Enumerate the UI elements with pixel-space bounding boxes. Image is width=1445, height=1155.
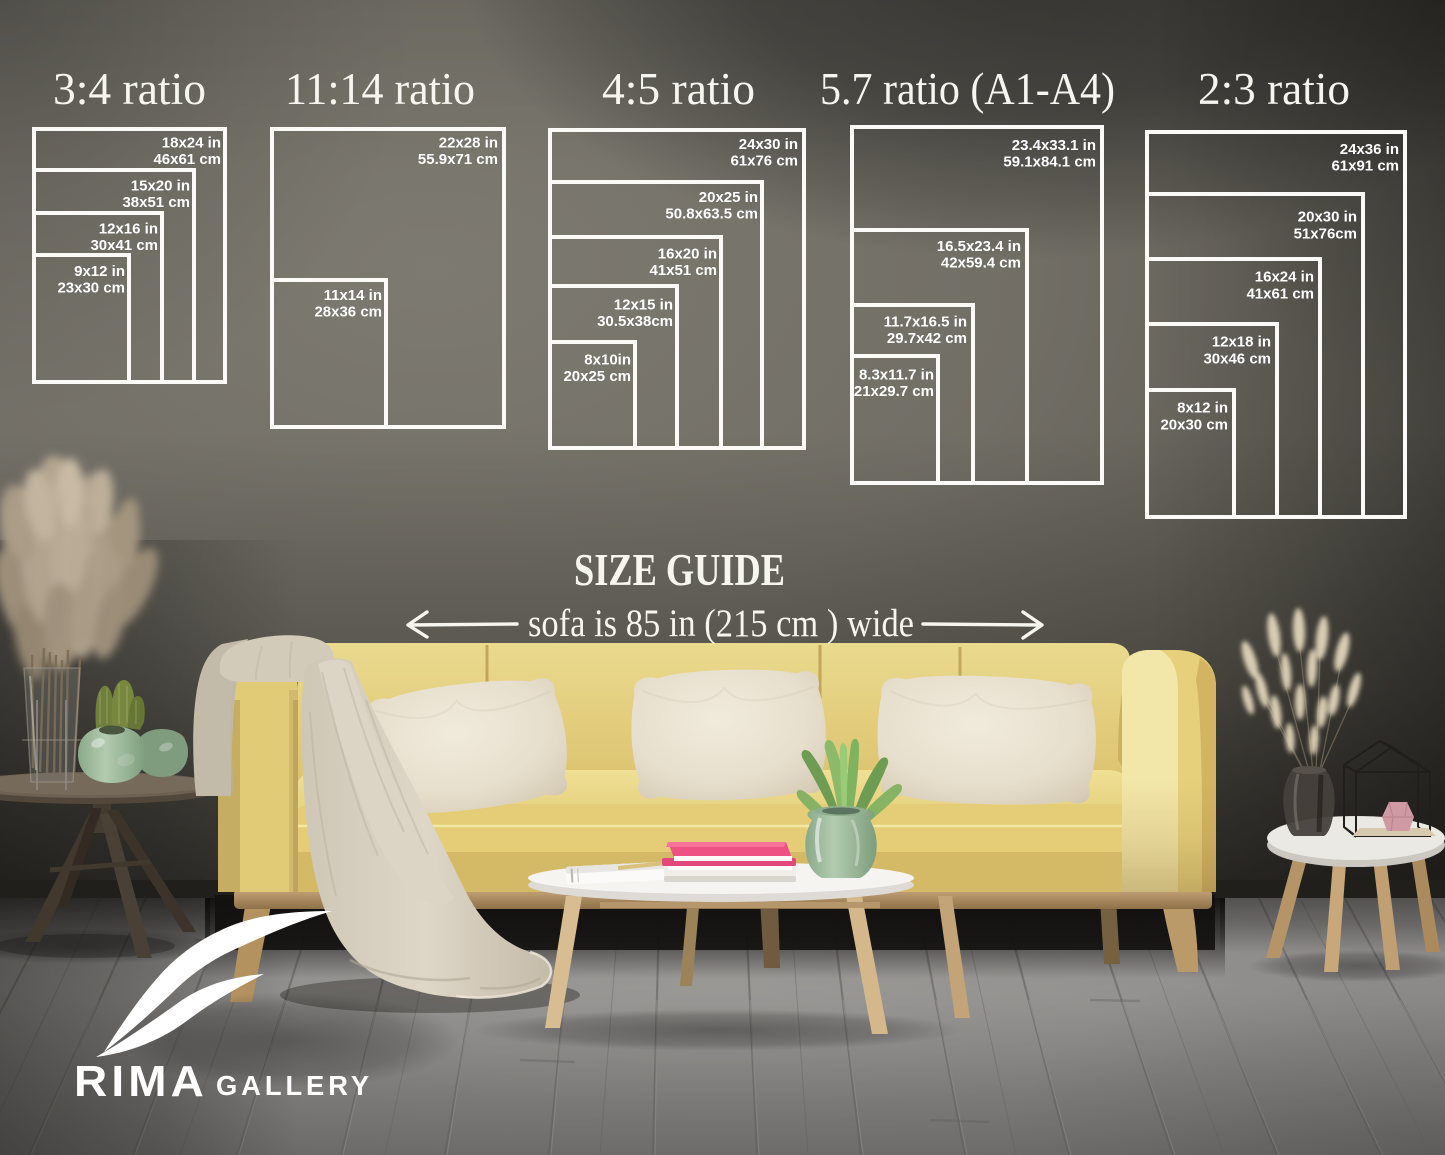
svg-text:16x20 in: 16x20 in (658, 246, 717, 263)
svg-text:55.9x71 cm: 55.9x71 cm (418, 151, 498, 168)
svg-text:16x24 in: 16x24 in (1255, 269, 1314, 286)
svg-text:24x30 in: 24x30 in (739, 136, 798, 153)
svg-text:9x12 in: 9x12 in (74, 263, 125, 280)
svg-text:38x51 cm: 38x51 cm (122, 194, 190, 211)
svg-text:20x25 cm: 20x25 cm (563, 368, 631, 385)
svg-text:16.5x23.4 in: 16.5x23.4 in (937, 238, 1021, 255)
svg-text:20x30 cm: 20x30 cm (1160, 417, 1228, 434)
svg-text:61x76 cm: 61x76 cm (730, 153, 798, 170)
svg-text:5.7 ratio (A1-A4): 5.7 ratio (A1-A4) (820, 64, 1115, 114)
svg-text:51x76cm: 51x76cm (1294, 226, 1357, 243)
svg-text:RIMA: RIMA (74, 1057, 208, 1106)
svg-text:30x46 cm: 30x46 cm (1203, 351, 1271, 368)
svg-text:11x14 in: 11x14 in (324, 287, 382, 304)
svg-text:46x61 cm: 46x61 cm (153, 151, 221, 168)
svg-text:22x28 in: 22x28 in (439, 135, 498, 152)
svg-text:41x51 cm: 41x51 cm (649, 262, 717, 279)
svg-text:12x16 in: 12x16 in (99, 221, 158, 238)
svg-text:41x61 cm: 41x61 cm (1246, 286, 1314, 303)
svg-text:59.1x84.1 cm: 59.1x84.1 cm (1003, 154, 1096, 171)
svg-text:3:4 ratio: 3:4 ratio (53, 64, 206, 114)
svg-text:29.7x42 cm: 29.7x42 cm (887, 330, 967, 347)
svg-text:12x15 in: 12x15 in (614, 297, 673, 314)
svg-text:42x59.4 cm: 42x59.4 cm (941, 255, 1021, 272)
svg-text:61x91 cm: 61x91 cm (1331, 158, 1399, 175)
svg-text:20x25 in: 20x25 in (699, 189, 758, 206)
svg-text:SIZE GUIDE: SIZE GUIDE (574, 544, 785, 595)
svg-text:15x20 in: 15x20 in (131, 178, 190, 195)
svg-text:GALLERY: GALLERY (216, 1070, 373, 1101)
svg-text:20x30 in: 20x30 in (1298, 209, 1357, 226)
svg-text:23.4x33.1 in: 23.4x33.1 in (1012, 137, 1096, 154)
svg-text:8x10in: 8x10in (584, 352, 631, 369)
svg-text:sofa is 85 in (215 cm ) wide: sofa is 85 in (215 cm ) wide (528, 602, 914, 645)
svg-text:24x36 in: 24x36 in (1340, 141, 1399, 158)
svg-text:11:14 ratio: 11:14 ratio (285, 64, 475, 114)
svg-text:8x12 in: 8x12 in (1177, 400, 1228, 417)
svg-text:30x41 cm: 30x41 cm (90, 237, 158, 254)
svg-text:2:3 ratio: 2:3 ratio (1198, 64, 1350, 114)
svg-text:8.3x11.7 in: 8.3x11.7 in (859, 367, 934, 384)
svg-text:18x24 in: 18x24 in (162, 135, 221, 152)
svg-text:11.7x16.5 in: 11.7x16.5 in (884, 314, 967, 331)
svg-text:21x29.7 cm: 21x29.7 cm (854, 383, 934, 400)
svg-text:28x36 cm: 28x36 cm (314, 304, 382, 321)
svg-text:4:5 ratio: 4:5 ratio (602, 64, 755, 114)
svg-text:30.5x38cm: 30.5x38cm (597, 313, 673, 330)
svg-text:50.8x63.5 cm: 50.8x63.5 cm (665, 206, 758, 223)
svg-text:12x18 in: 12x18 in (1212, 334, 1271, 351)
svg-text:23x30 cm: 23x30 cm (57, 280, 125, 297)
